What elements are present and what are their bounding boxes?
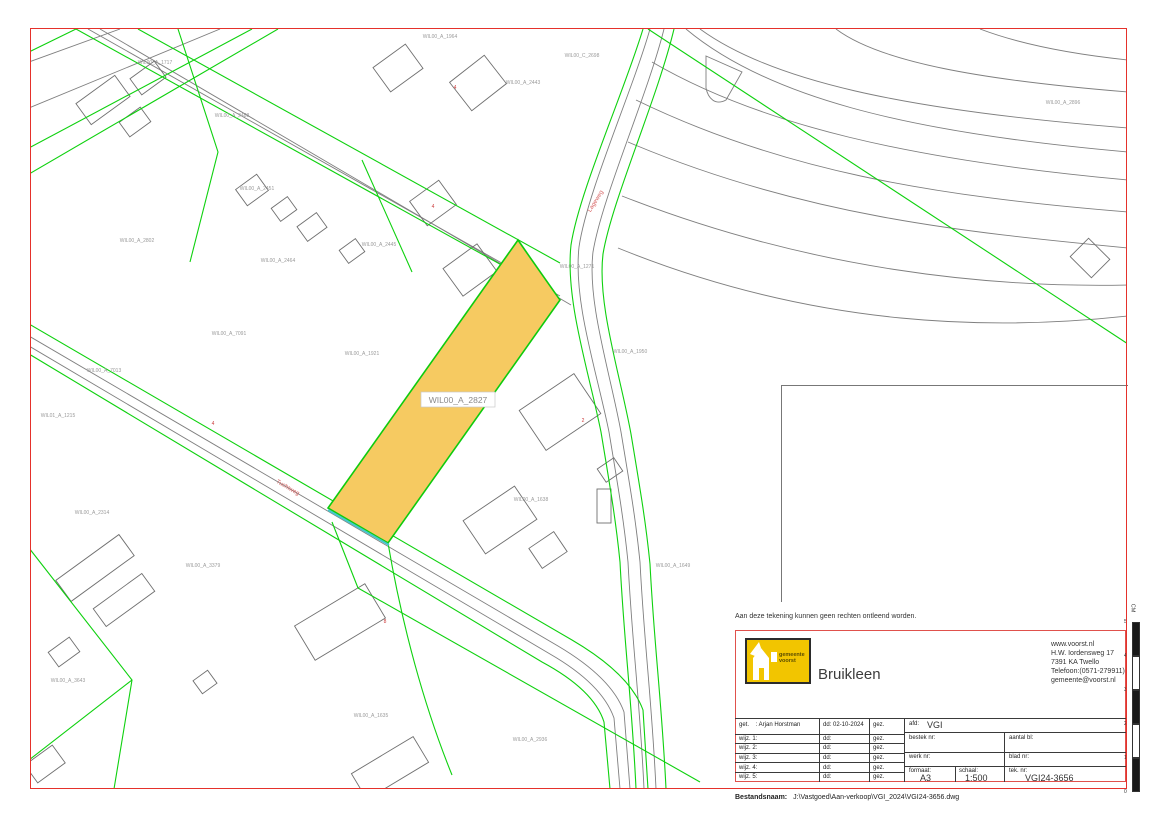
- address-line: H.W. Iordensweg 17: [1051, 649, 1125, 658]
- ruler-tick: 0: [1124, 789, 1127, 795]
- gez-field: gez.: [873, 722, 884, 728]
- werk-label: werk nr:: [909, 754, 930, 760]
- parcel-label: WIL00_A_1717: [138, 60, 173, 66]
- parcel-label: WIL00_A_2314: [75, 510, 110, 516]
- wijz-field: wijz. 4:: [739, 765, 757, 771]
- parcel-label: WIL00_A_2802: [120, 238, 155, 244]
- municipality-address: www.voorst.nlH.W. Iordensweg 177391 KA T…: [1051, 640, 1125, 685]
- get-field: get. : Arjan Horstman: [739, 722, 800, 728]
- parcel-label: WIL00_A_7013: [87, 368, 122, 374]
- parcel-label: WIL00_A_1271: [560, 264, 595, 270]
- wijz-field: wijz. 5:: [739, 774, 757, 780]
- address-line: 7391 KA Twello: [1051, 658, 1125, 667]
- wijz-field: wijz. 1:: [739, 736, 757, 742]
- address-line: gemeente@voorst.nl: [1051, 676, 1125, 685]
- svg-text:WIL00_A_2827: WIL00_A_2827: [429, 395, 488, 405]
- wijz-field: wijz. 2:: [739, 745, 757, 751]
- parcel-label: WIL00_A_2936: [513, 737, 548, 743]
- wijz-field: wijz. 3:: [739, 755, 757, 761]
- dd-field: dd:: [823, 755, 831, 761]
- ruler-segment: [1132, 690, 1140, 724]
- parcel-label: WIL00_C_2698: [565, 53, 600, 59]
- parcel-label: WIL00_A_2451: [240, 186, 275, 192]
- parcel-label: WIL00_A_1649: [656, 563, 691, 569]
- gez-field: gez.: [873, 736, 884, 742]
- bestek-label: bestek nr:: [909, 735, 935, 741]
- house-number: 2: [582, 418, 585, 424]
- address-line: Telefoon:(0571-279911): [1051, 667, 1125, 676]
- afd-value: VGI: [927, 720, 943, 730]
- aantal-label: aantal bl:: [1009, 735, 1033, 741]
- parcel-label: WIL01_A_1215: [41, 413, 76, 419]
- house-numbers: 44428: [212, 85, 585, 625]
- parcel-label: WIL00_A_1964: [423, 34, 458, 40]
- highlighted-parcel-label: WIL00_A_2827: [421, 392, 495, 407]
- blad-label: blad nr:: [1009, 754, 1029, 760]
- parcel-label: WIL00_A_1950: [613, 349, 648, 355]
- parcel-label: WIL00_A_1638: [514, 497, 549, 503]
- parcel-label: WIL00_A_2445: [362, 242, 397, 248]
- ruler-tick: 2: [1124, 721, 1127, 727]
- ruler-segment: [1132, 724, 1140, 758]
- ruler-tick: 3: [1124, 687, 1127, 693]
- parcel-label: WIL00_A_2443: [506, 80, 541, 86]
- ruler-segment: [1132, 656, 1140, 690]
- cm-ruler-unit: CM: [1129, 604, 1135, 613]
- dd-field: dd: 02-10-2024: [823, 722, 864, 728]
- logo-text: gemeente voorst: [779, 653, 805, 664]
- afd-label: afd:: [909, 721, 919, 727]
- parcel-label: WIL00_A_2488: [215, 113, 250, 119]
- house-number: 4: [212, 421, 215, 427]
- road-name-label: Tuchtweg: [275, 479, 300, 497]
- parcel-label: WIL00_A_7091: [212, 331, 247, 337]
- ruler-tick: 4: [1124, 653, 1127, 659]
- dd-field: dd:: [823, 774, 831, 780]
- house-number: 8: [384, 619, 387, 625]
- disclaimer: Aan deze tekening kunnen geen rechten on…: [735, 613, 916, 620]
- document-title: Bruikleen: [818, 666, 881, 683]
- teknr-value: VGI24-3656: [1025, 773, 1074, 783]
- filename-footer: Bestandsnaam:J:\Vastgoed\Aan-verkoop\VGI…: [735, 794, 959, 801]
- gez-field: gez.: [873, 774, 884, 780]
- parcel-label: WIL00_A_1635: [354, 713, 389, 719]
- gez-field: gez.: [873, 745, 884, 751]
- address-line: www.voorst.nl: [1051, 640, 1125, 649]
- legend-panel: Verklaring Door de gemeente Voorst in br…: [781, 385, 1128, 602]
- dd-field: dd:: [823, 736, 831, 742]
- ruler-segment: [1132, 758, 1140, 792]
- gez-field: gez.: [873, 755, 884, 761]
- ruler-segment: [1132, 622, 1140, 656]
- parcel-label: WIL00_A_3379: [186, 563, 221, 569]
- drawing-page: WIL00_A_2827 WIL00_A_1717WIL00_A_2488WIL…: [0, 0, 1158, 814]
- house-number: 4: [454, 85, 457, 91]
- dd-field: dd:: [823, 765, 831, 771]
- ruler-tick: 1: [1124, 755, 1127, 761]
- formaat-value: A3: [920, 773, 931, 783]
- parcel-label: WIL00_A_1921: [345, 351, 380, 357]
- parcel-label: WIL00_A_3643: [51, 678, 86, 684]
- parcel-label: WIL00_A_2464: [261, 258, 296, 264]
- gez-field: gez.: [873, 765, 884, 771]
- dd-field: dd:: [823, 745, 831, 751]
- house-number: 4: [432, 204, 435, 210]
- parcel-label: WIL00_A_2896: [1046, 100, 1081, 106]
- schaal-value: 1:500: [965, 773, 988, 783]
- ruler-tick: 5: [1124, 619, 1127, 625]
